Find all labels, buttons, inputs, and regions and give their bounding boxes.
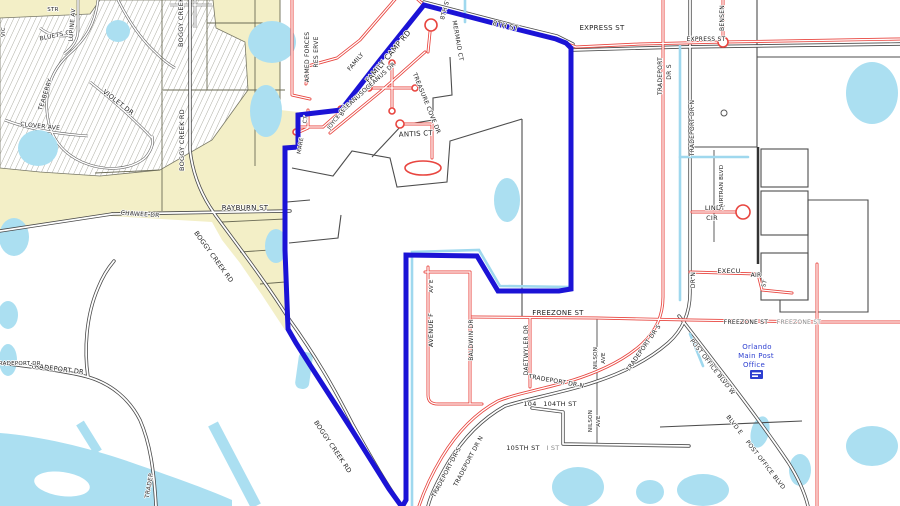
map-canvas[interactable]: BOGGY CREEK RD BOGGY CREEK RD BOGGY CREE… [0,0,900,506]
label-boggy-creek-rd: BOGGY CREEK RD [178,109,186,171]
label-reserve: RES ERVE [313,36,320,67]
label-boggy-creek-rd: BOGGY CREEK RD [177,0,185,47]
post-office-icon [750,370,763,379]
label-execu: EXECU [717,267,740,275]
label-airtran-blvd: AIRTRAN BLVD [719,165,725,208]
label-baldwin-dr: BALDWIN DR [468,319,475,361]
label-tradeport: TRADEPORT [657,57,664,96]
label-daetwyler-dr: DAETWYLER DR [523,325,530,376]
label-avenue-f: AVENUE F [427,313,435,347]
post-office-line3: Office [743,361,765,369]
label-i-st: I ST [546,444,559,452]
label-freezone-st: FREEZONE ST [724,319,769,326]
map-svg: BOGGY CREEK RD BOGGY CREEK RD BOGGY CREE… [0,0,900,506]
label-tradeport-dr-n: TRADEPORT DR N [689,100,696,157]
label-dr-n: DR N [690,272,697,288]
label-nilson: NILSON [593,347,599,369]
label-freezone-st: FREEZONE ST [532,309,584,317]
label-freezone-st: FREEZONE ST [777,319,822,326]
label-105th-st: 105TH ST [506,444,539,452]
post-office-line1: Orlando [742,343,772,351]
label-vic-fragment: VIC [1,27,7,37]
label-cir: CIR [706,214,718,222]
label-bensen: BENSEN [719,5,726,31]
label-104th-st: 104TH ST [543,400,576,408]
label-av-e-fragment: AV E [429,279,435,293]
label-air: AIR [751,272,762,279]
label-nilson: NILSON [588,410,594,432]
label-104: 104 [523,400,536,408]
label-armed-forces: ARMED FORCES [304,32,311,83]
label-rayburn-st: RAYBURN ST [222,204,269,212]
post-office-line2: Main Post [738,352,774,360]
label-ave: AVE [596,415,602,427]
label-dr-s: DR S [666,64,673,80]
label-express-st: EXPRESS ST [687,36,726,43]
label-ave: AVE [601,352,607,364]
label-str-fragment: STR [47,7,58,13]
label-express-st: EXPRESS ST [579,24,625,32]
label-tradeport-dr: TRADEPORT DR [0,361,41,367]
